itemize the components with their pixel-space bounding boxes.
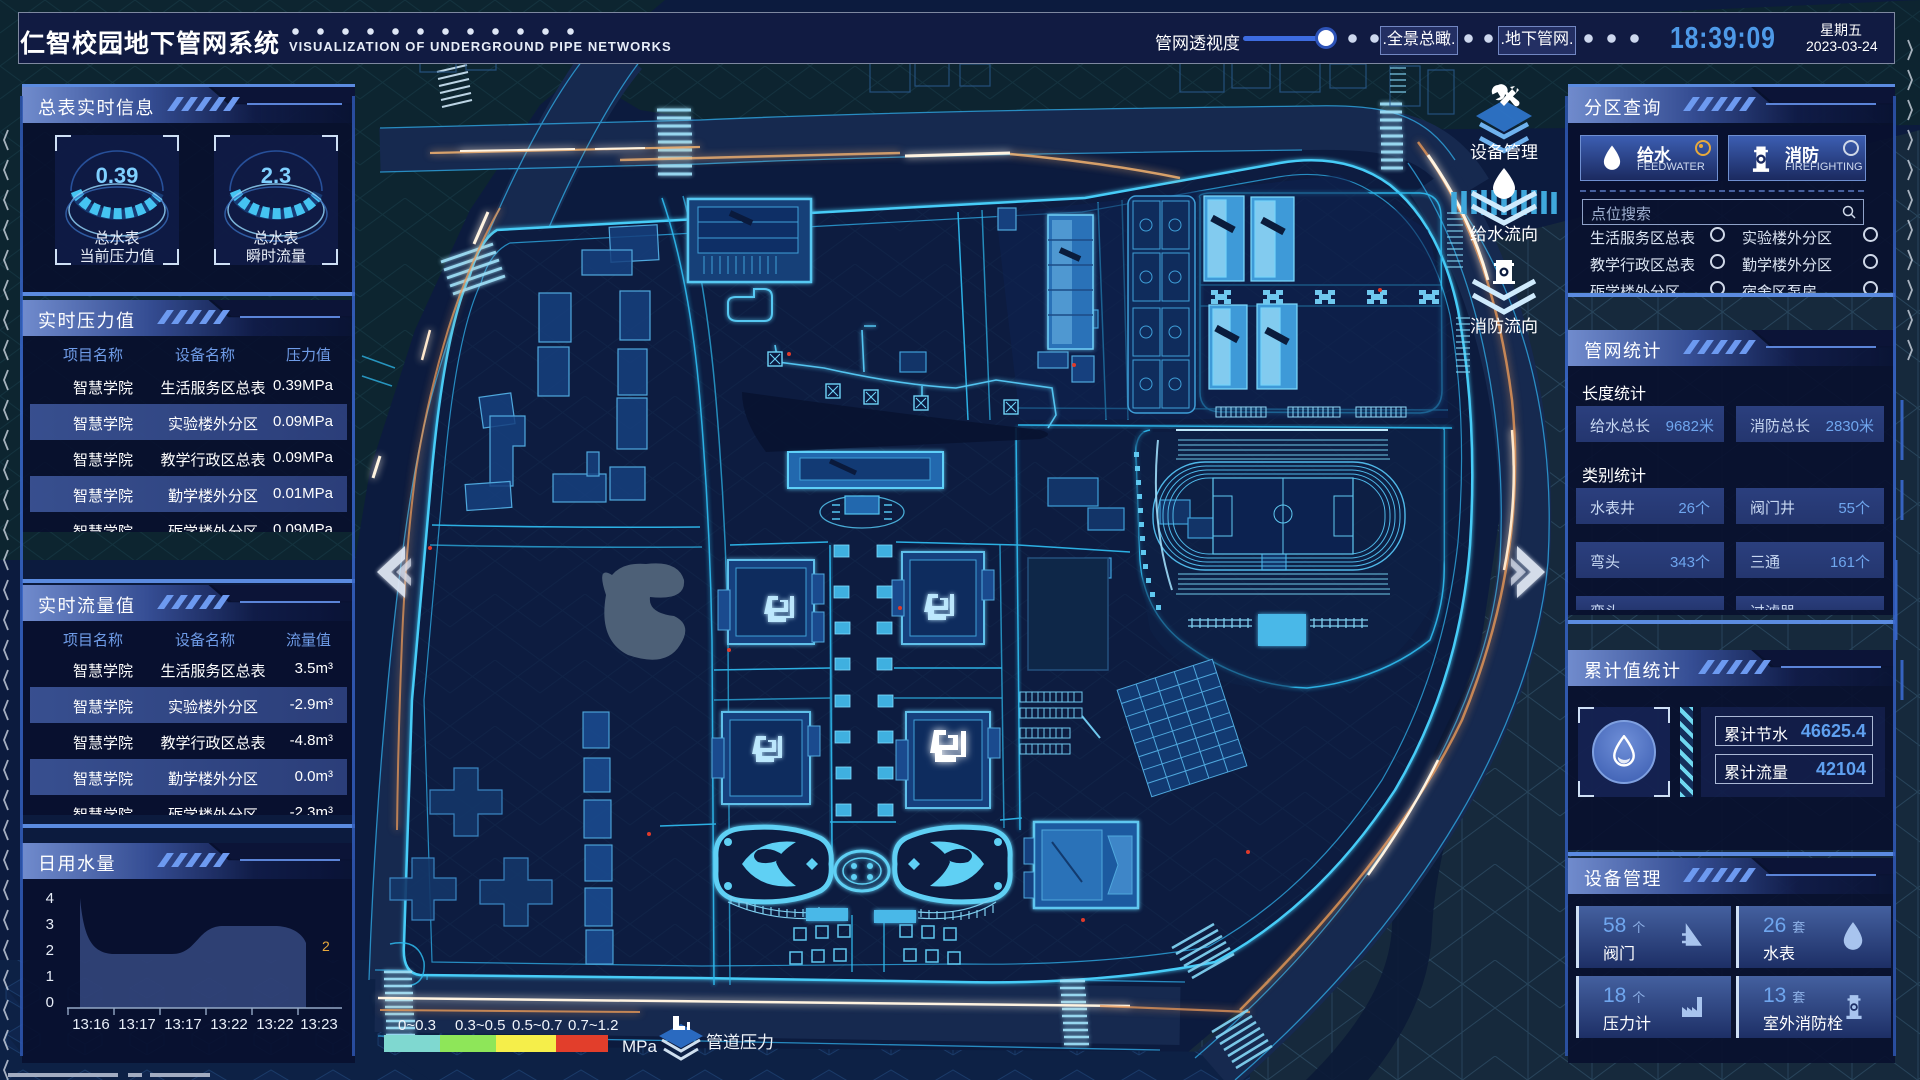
svg-text:消防流向: 消防流向 bbox=[1470, 317, 1538, 336]
svg-text:设备管理: 设备管理 bbox=[1470, 143, 1538, 162]
svg-text:0: 0 bbox=[46, 994, 54, 1011]
svg-text:MPa: MPa bbox=[622, 1037, 658, 1056]
svg-text:13:23: 13:23 bbox=[300, 1016, 338, 1033]
svg-text:4: 4 bbox=[46, 890, 54, 907]
svg-text:0.39: 0.39 bbox=[96, 163, 139, 188]
svg-text:0.3~0.5: 0.3~0.5 bbox=[455, 1017, 505, 1034]
svg-text:给水流向: 给水流向 bbox=[1470, 225, 1538, 244]
svg-text:0.5~0.7: 0.5~0.7 bbox=[512, 1017, 562, 1034]
svg-text:13:17: 13:17 bbox=[118, 1016, 156, 1033]
svg-text:13:22: 13:22 bbox=[256, 1016, 294, 1033]
svg-text:1: 1 bbox=[46, 968, 54, 985]
svg-text:2.3: 2.3 bbox=[261, 163, 292, 188]
svg-text:3: 3 bbox=[46, 916, 54, 933]
svg-text:管道压力: 管道压力 bbox=[706, 1033, 774, 1052]
svg-text:13:16: 13:16 bbox=[72, 1016, 110, 1033]
svg-text:13:17: 13:17 bbox=[164, 1016, 202, 1033]
svg-text:2: 2 bbox=[46, 942, 54, 959]
svg-text:0.7~1.2: 0.7~1.2 bbox=[568, 1017, 618, 1034]
svg-text:13:22: 13:22 bbox=[210, 1016, 248, 1033]
svg-text:2: 2 bbox=[322, 938, 330, 954]
svg-text:0~0.3: 0~0.3 bbox=[398, 1017, 436, 1034]
